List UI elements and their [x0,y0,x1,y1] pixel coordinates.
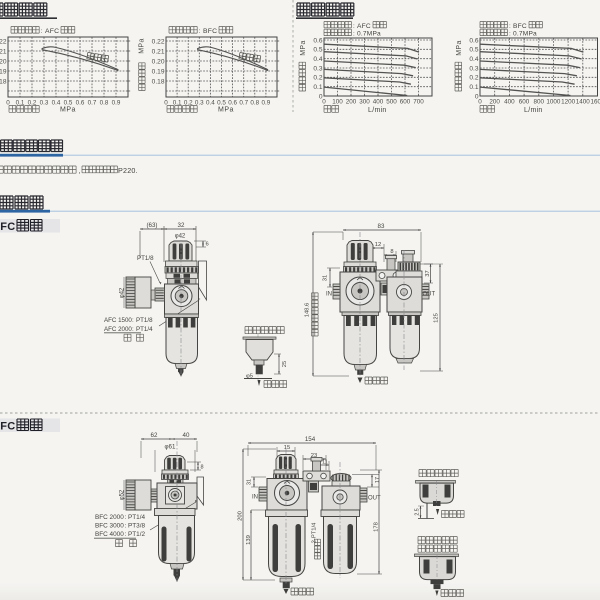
svg-text:MPa: MPa [300,40,307,56]
svg-text:200: 200 [238,511,244,521]
svg-text:.: . [136,168,138,175]
svg-text:MPa: MPa [139,38,146,54]
svg-text:37: 37 [425,270,431,276]
svg-text:0.18: 0.18 [152,78,165,85]
svg-text:1000: 1000 [546,99,561,106]
svg-text:178: 178 [374,522,380,532]
svg-text:25: 25 [282,361,288,367]
svg-text::: : [125,514,127,521]
svg-text:40: 40 [183,432,190,439]
svg-text:2.5: 2.5 [415,508,421,515]
svg-text:0.19: 0.19 [152,68,165,75]
svg-text:0.2: 0.2 [469,75,478,82]
svg-text:8: 8 [201,465,204,471]
svg-text:AFC: AFC [45,28,59,35]
svg-text:PT1/8: PT1/8 [136,317,153,324]
svg-text:0.3: 0.3 [40,100,49,107]
svg-text:φ52: φ52 [120,489,126,500]
svg-text:0.2: 0.2 [313,75,322,82]
svg-text:0.21: 0.21 [152,48,165,55]
svg-text:200: 200 [346,99,357,106]
svg-text:1200: 1200 [561,99,576,106]
svg-text:0.20: 0.20 [152,58,165,65]
svg-text::: : [353,31,355,38]
svg-text:0.8: 0.8 [100,100,109,107]
svg-text:,: , [79,168,81,175]
svg-text:BFC 4000: BFC 4000 [95,531,124,538]
svg-text:IN: IN [326,292,332,298]
svg-text:32: 32 [178,222,185,229]
svg-text:1400: 1400 [576,99,591,106]
svg-text:700: 700 [413,99,424,106]
svg-text:OUT: OUT [423,292,436,298]
svg-text:139: 139 [246,535,252,545]
svg-text:0.4: 0.4 [206,100,215,107]
svg-text:BFC 2000: BFC 2000 [95,514,124,521]
svg-text:φ42: φ42 [120,287,126,298]
svg-text:AFC 1500: AFC 1500 [104,317,132,324]
svg-text:(63): (63) [146,222,157,229]
svg-text:6: 6 [206,242,209,248]
svg-text:φ42: φ42 [175,234,186,240]
svg-text:31: 31 [323,275,329,281]
svg-text:154: 154 [305,436,316,443]
svg-text:0.7MPa: 0.7MPa [513,31,537,38]
svg-text:0.18: 0.18 [0,78,7,85]
svg-text:PT1/4: PT1/4 [128,514,145,521]
svg-text:11: 11 [322,460,328,466]
svg-text:MPa: MPa [60,107,76,114]
svg-text::: : [132,317,134,324]
svg-text::: : [132,326,134,333]
svg-text:MPa: MPa [456,40,463,56]
svg-text:400: 400 [373,99,384,106]
svg-text:BFC: BFC [513,23,527,30]
svg-text:L/min: L/min [524,107,543,114]
svg-text:0: 0 [478,99,482,106]
svg-text:0.1: 0.1 [469,84,478,91]
svg-text:0.9: 0.9 [112,100,121,107]
svg-text:200: 200 [489,99,500,106]
svg-text:600: 600 [519,99,530,106]
svg-text:0.4: 0.4 [469,56,478,63]
svg-text:L/min: L/min [368,107,387,114]
svg-text:800: 800 [533,99,544,106]
svg-text:0.7MPa: 0.7MPa [357,31,381,38]
svg-text:0.4: 0.4 [313,56,322,63]
svg-text:0.5: 0.5 [64,100,73,107]
svg-text:0.6: 0.6 [76,100,85,107]
svg-text::: : [509,23,511,30]
svg-text:83: 83 [378,223,385,230]
svg-text:BFC: BFC [0,421,16,433]
svg-text:0.5: 0.5 [313,47,322,54]
svg-text:φ61: φ61 [165,444,176,451]
svg-text:PT1/2: PT1/2 [128,531,145,538]
svg-text:IN: IN [252,495,258,501]
svg-text:400: 400 [504,99,515,106]
svg-text:PT3/8: PT3/8 [128,523,145,530]
svg-text:0: 0 [322,99,326,106]
svg-text:15: 15 [284,445,290,451]
svg-text:148.6: 148.6 [305,303,311,318]
svg-text::: : [353,23,355,30]
svg-text:17: 17 [375,477,381,483]
svg-text:0.8: 0.8 [250,100,259,107]
svg-text:600: 600 [400,99,411,106]
svg-text::: : [125,531,127,538]
svg-text:0.20: 0.20 [0,58,7,65]
svg-text:AFC 2000: AFC 2000 [104,326,132,333]
svg-text:0.5: 0.5 [217,100,226,107]
svg-text:500: 500 [386,99,397,106]
svg-text::: : [199,28,201,35]
svg-text:0.5: 0.5 [469,47,478,54]
svg-text::: : [509,31,511,38]
svg-text:125: 125 [434,313,440,323]
svg-text:0.1: 0.1 [313,84,322,91]
svg-text:0.9: 0.9 [262,100,271,107]
svg-text::: : [125,523,127,530]
svg-text:100: 100 [332,99,343,106]
svg-text:300: 300 [359,99,370,106]
svg-text:0.6: 0.6 [228,100,237,107]
svg-text:P220: P220 [118,166,136,175]
svg-text:0.3: 0.3 [469,65,478,72]
svg-text:0.22: 0.22 [0,38,7,45]
svg-text:1600: 1600 [590,99,600,106]
svg-text:31: 31 [247,479,253,485]
svg-text:62: 62 [151,432,158,439]
svg-text:0.3: 0.3 [313,65,322,72]
svg-text:AFC: AFC [0,221,16,233]
svg-text:BFC: BFC [203,28,217,35]
svg-text:0.4: 0.4 [52,100,61,107]
svg-text:AFC: AFC [357,23,371,30]
svg-text:8: 8 [390,249,393,255]
svg-text:0.6: 0.6 [469,37,478,44]
svg-text:12: 12 [375,242,381,248]
svg-text:0.19: 0.19 [0,68,7,75]
svg-text:0.21: 0.21 [0,48,7,55]
svg-text:0.7: 0.7 [88,100,97,107]
svg-text:0.7: 0.7 [239,100,248,107]
svg-text:0.6: 0.6 [313,37,322,44]
svg-text::: : [41,28,43,35]
svg-text:BFC 3000: BFC 3000 [95,523,124,530]
svg-text:0.22: 0.22 [152,38,165,45]
svg-text:PT1/8: PT1/8 [137,255,154,262]
svg-text:MPa: MPa [218,107,234,114]
svg-text:PT1/4: PT1/4 [136,326,153,333]
